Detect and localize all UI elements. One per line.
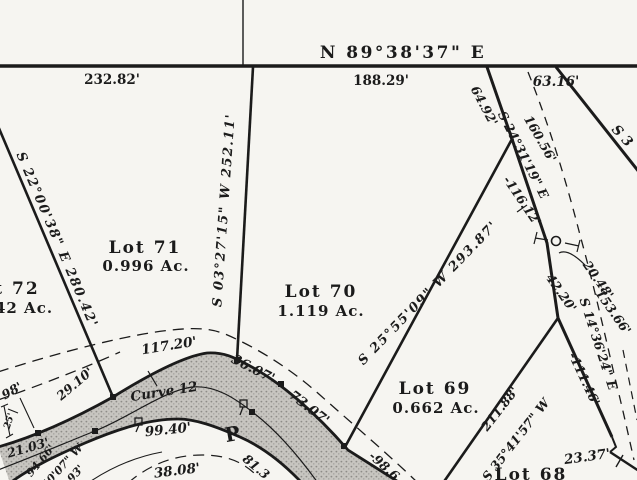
lot72-71-boundary-line bbox=[0, 126, 113, 397]
survey-point-marker bbox=[35, 430, 41, 436]
leader-arc-arrow bbox=[559, 252, 585, 265]
lot71-name: Lot 71 bbox=[109, 238, 182, 258]
survey-point-marker bbox=[341, 443, 347, 449]
road-dist-117: 117.20' bbox=[140, 334, 198, 359]
north-boundary-bearing: N 89°38'37" E bbox=[320, 43, 486, 63]
survey-point-marker bbox=[249, 409, 255, 415]
survey-drawing: N 89°38'37" E 232.82' 188.29' 63.16' t 7… bbox=[0, 0, 637, 480]
lot70-name: Lot 70 bbox=[285, 282, 358, 302]
survey-point-marker bbox=[278, 381, 284, 387]
ne-partial-bearing: S 3 bbox=[608, 122, 636, 150]
lot72-name: t 72 bbox=[0, 279, 40, 299]
road-dist-99: 99.40' bbox=[144, 420, 192, 441]
east-edge-dashed bbox=[623, 350, 637, 420]
plat-map: N 89°38'37" E 232.82' 188.29' 63.16' t 7… bbox=[0, 0, 637, 480]
lot71-70-bearing: S 03°27'15" W 252.11' bbox=[210, 113, 239, 308]
north-dist-188: 188.29' bbox=[353, 73, 409, 89]
lot69-area: 0.662 Ac. bbox=[392, 399, 479, 417]
lot72-area: 42 Ac. bbox=[0, 299, 53, 317]
lot70-area: 1.119 Ac. bbox=[277, 302, 364, 320]
road-dist-25: 25' bbox=[1, 412, 17, 432]
east-dist-23: 23.37' bbox=[562, 446, 611, 468]
road-dist-29: 29.10' bbox=[53, 364, 96, 404]
lot69-68-dist: 211.88' bbox=[477, 384, 521, 435]
survey-point-marker bbox=[110, 394, 116, 400]
lot68-north-line bbox=[610, 452, 637, 471]
extension-tick-right bbox=[565, 240, 580, 252]
road-dist-81: 81.3 bbox=[240, 451, 273, 480]
lot71-area: 0.996 Ac. bbox=[102, 257, 189, 275]
north-dist-232: 232.82' bbox=[84, 72, 140, 88]
lot70-69-bearing: S 25°55'09" W 293.87' bbox=[355, 218, 501, 368]
curve-point-circle-marker bbox=[552, 237, 561, 246]
survey-point-marker bbox=[92, 428, 98, 434]
lot69-name: Lot 69 bbox=[399, 379, 472, 399]
lot68-name: Lot 68 bbox=[495, 465, 568, 480]
east-dist-42: 42.20' bbox=[543, 271, 580, 315]
east-boundary-jog-line bbox=[610, 437, 616, 452]
north-dist-63: 63.16' bbox=[533, 74, 579, 90]
lot71-70-boundary-line bbox=[237, 67, 253, 360]
south-lot-curve bbox=[88, 452, 162, 480]
